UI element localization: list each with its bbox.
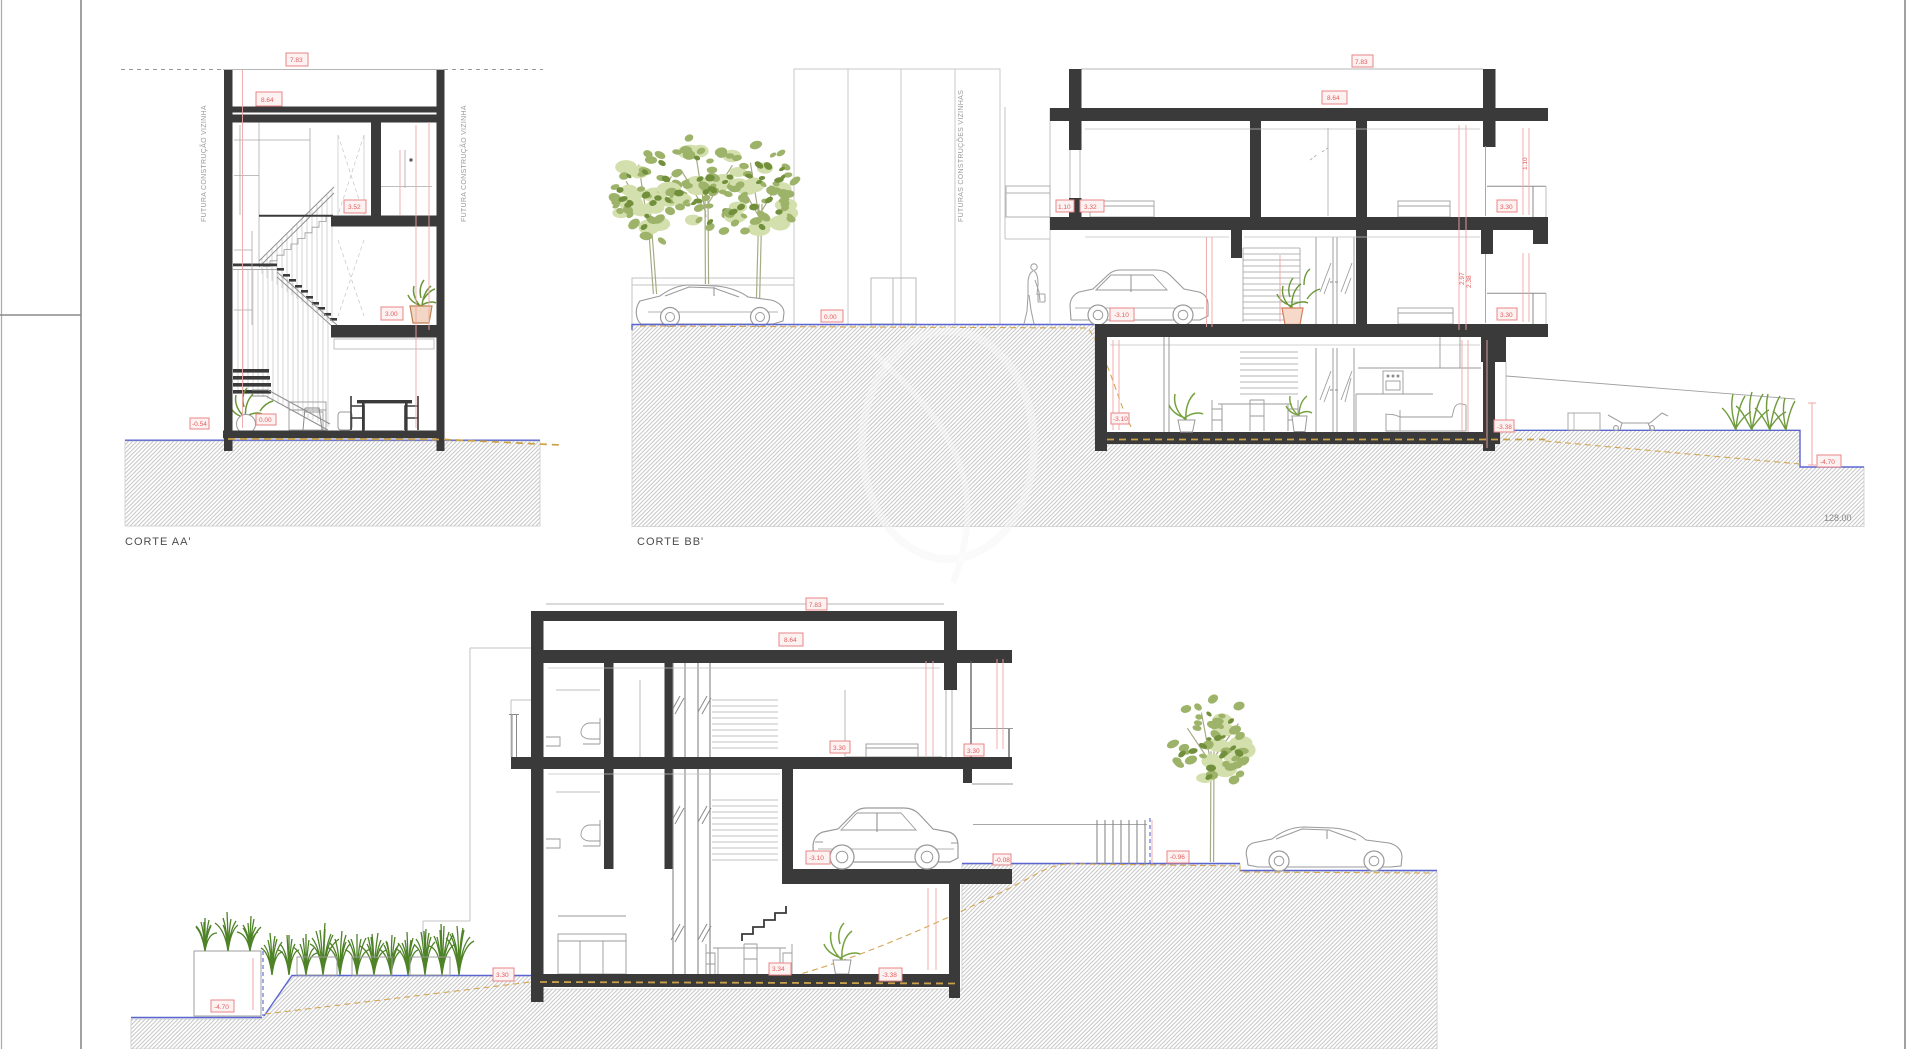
- svg-text:-0.08: -0.08: [995, 857, 1010, 864]
- svg-text:FUTURA CONSTRUÇÃO VIZINHA: FUTURA CONSTRUÇÃO VIZINHA: [199, 105, 208, 222]
- svg-text:-4.70: -4.70: [1820, 459, 1835, 466]
- svg-text:CORTE AA': CORTE AA': [125, 536, 192, 548]
- svg-text:2.97: 2.97: [1459, 272, 1466, 285]
- svg-text:3.00: 3.00: [385, 311, 398, 318]
- svg-text:8.64: 8.64: [261, 97, 274, 104]
- svg-text:-0.96: -0.96: [1170, 854, 1185, 861]
- svg-text:FUTURAS CONSTRUÇÕES VIZINHAS: FUTURAS CONSTRUÇÕES VIZINHAS: [956, 90, 965, 222]
- svg-text:FUTURA CONSTRUÇÃO VIZINHA: FUTURA CONSTRUÇÃO VIZINHA: [459, 105, 468, 222]
- svg-text:8.64: 8.64: [784, 637, 797, 644]
- svg-text:-3.38: -3.38: [882, 972, 897, 979]
- svg-text:3.30: 3.30: [496, 972, 509, 979]
- svg-text:1.10: 1.10: [1058, 204, 1071, 211]
- svg-text:3.30: 3.30: [833, 745, 846, 752]
- svg-text:3.30: 3.30: [1500, 312, 1513, 319]
- svg-text:3.34: 3.34: [772, 966, 785, 973]
- svg-text:-3.10: -3.10: [809, 855, 824, 862]
- svg-text:3.30: 3.30: [967, 748, 980, 755]
- svg-text:3.30: 3.30: [1500, 204, 1513, 211]
- svg-text:1.10: 1.10: [1522, 157, 1529, 170]
- svg-text:3.52: 3.52: [348, 204, 361, 211]
- svg-text:8.64: 8.64: [1327, 95, 1340, 102]
- svg-text:-0.54: -0.54: [192, 421, 207, 428]
- svg-text:7.83: 7.83: [809, 602, 822, 609]
- svg-text:7.83: 7.83: [290, 57, 303, 64]
- svg-text:-4.70: -4.70: [214, 1004, 229, 1011]
- svg-text:-3.38: -3.38: [1497, 424, 1512, 431]
- svg-text:0.00: 0.00: [824, 314, 837, 321]
- svg-text:2.38: 2.38: [1466, 275, 1473, 288]
- svg-text:128.00: 128.00: [1824, 513, 1852, 523]
- svg-text:3.32: 3.32: [1084, 204, 1097, 211]
- svg-text:0.00: 0.00: [259, 417, 272, 424]
- svg-text:CORTE BB': CORTE BB': [637, 536, 704, 548]
- svg-text:-3.10: -3.10: [1114, 312, 1129, 319]
- svg-text:-3.10: -3.10: [1113, 416, 1128, 423]
- svg-text:7.83: 7.83: [1355, 59, 1368, 66]
